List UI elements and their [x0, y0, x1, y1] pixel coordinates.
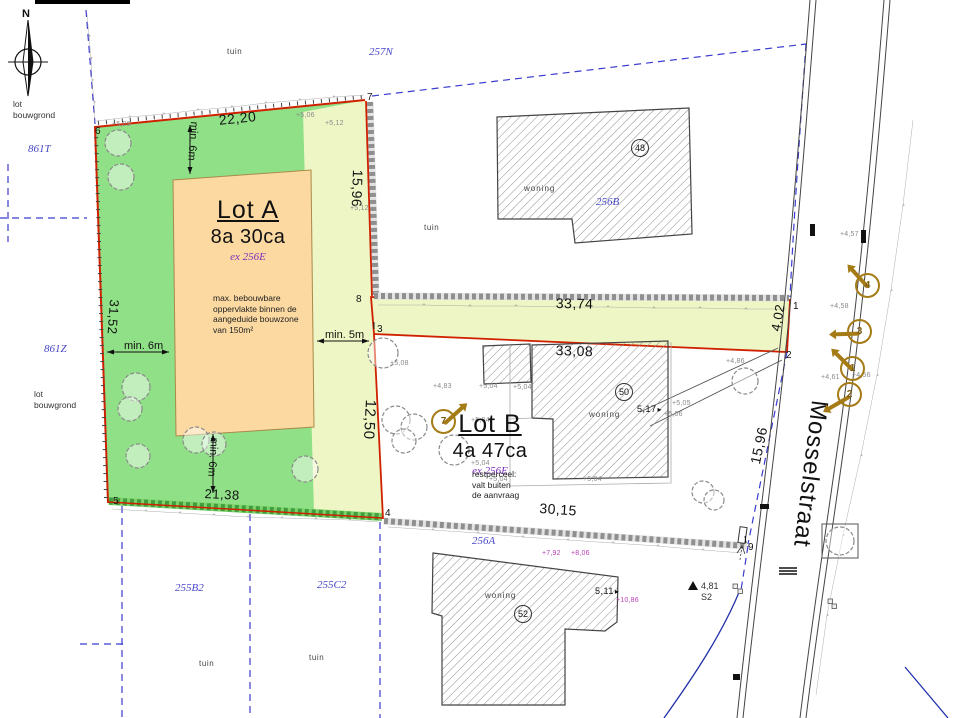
cropped-title-bar	[35, 0, 130, 4]
lot-a-title: Lot A	[203, 196, 293, 225]
lot-b-size: 4a 47ca	[445, 440, 535, 463]
cadastral-site-plan: 22,2015,9631,5221,3812,5033,744,0233,083…	[0, 0, 957, 718]
bouwzone-note: max. bebouwbare oppervlakte binnen de aa…	[213, 293, 308, 336]
benchmark-marker: 4,81 S2	[688, 581, 719, 602]
benchmark-code: S2	[701, 592, 719, 602]
sewer-lines	[664, 590, 948, 718]
lot-a-size: 8a 30ca	[203, 226, 293, 249]
lot-a-card: Lot A 8a 30ca ex 256E	[203, 196, 293, 263]
benchmark-triangle-icon	[688, 581, 698, 590]
building-50-annex	[483, 344, 531, 384]
benchmark-value: 4,81	[701, 581, 719, 591]
building-52	[432, 553, 618, 705]
lot-b-card: Lot B 4a 47ca ex 256E	[445, 410, 535, 477]
compass-north-arrow-icon	[8, 20, 48, 96]
lot-a-origin-parcel: ex 256E	[203, 251, 293, 263]
buildings	[432, 108, 692, 705]
building-50	[532, 341, 668, 479]
road-lines	[737, 0, 890, 718]
lot-b-note: restperceel: valt buiten de aanvraag	[472, 469, 542, 501]
compass-north-label: N	[22, 8, 30, 20]
building-48	[497, 108, 692, 243]
lot-b-title: Lot B	[445, 410, 535, 439]
site-plan-drawing	[0, 0, 957, 718]
